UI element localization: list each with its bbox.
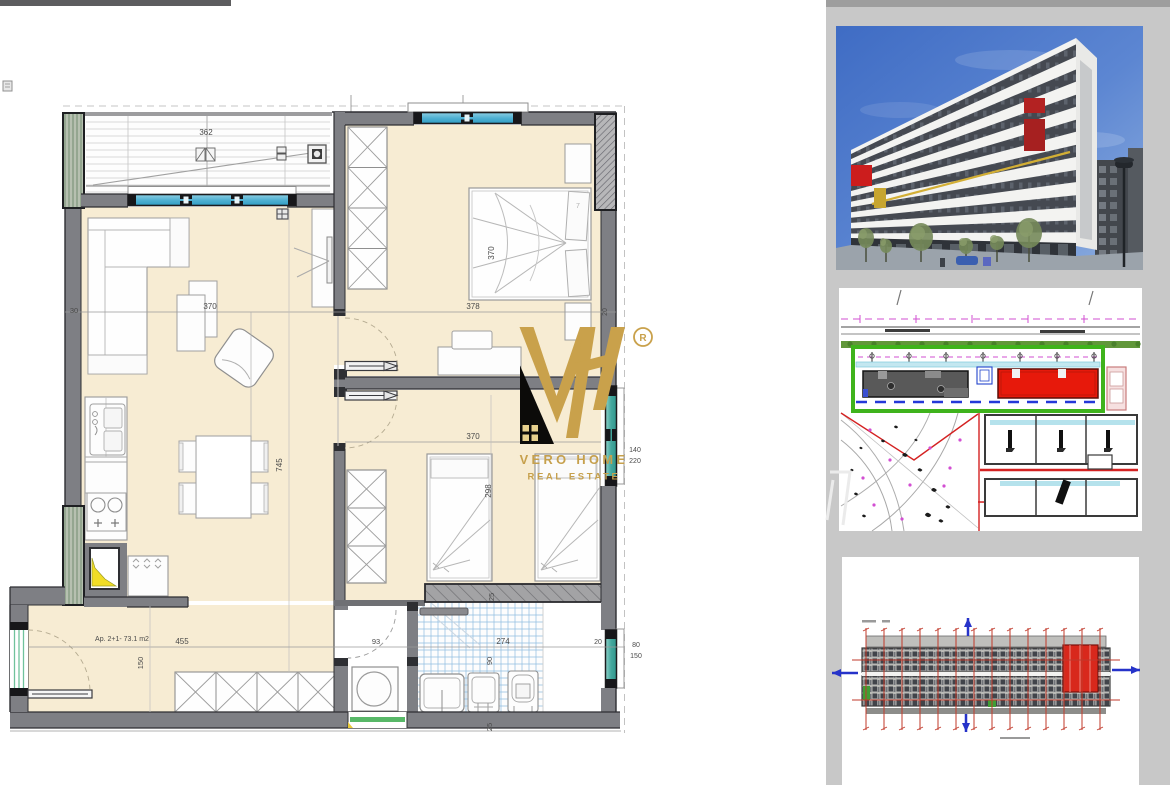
svg-text:220: 220: [629, 458, 641, 465]
svg-text:VERO HOME: VERO HOME: [520, 452, 629, 467]
svg-text:274: 274: [496, 637, 510, 646]
svg-text:455: 455: [175, 637, 189, 646]
svg-text:Ap. 2+1- 73.1 m2: Ap. 2+1- 73.1 m2: [95, 636, 149, 643]
svg-text:REAL ESTATE: REAL ESTATE: [528, 472, 621, 483]
svg-text:7: 7: [576, 203, 580, 210]
svg-text:80: 80: [632, 642, 640, 649]
svg-text:745: 745: [275, 458, 284, 472]
svg-text:378: 378: [466, 302, 480, 311]
svg-text:90: 90: [485, 657, 494, 665]
svg-text:20: 20: [602, 308, 609, 316]
svg-text:30: 30: [70, 306, 78, 315]
svg-text:370: 370: [487, 246, 496, 260]
svg-text:93: 93: [372, 637, 380, 646]
svg-text:370: 370: [203, 302, 217, 311]
svg-text:370: 370: [466, 432, 480, 441]
svg-text:150: 150: [136, 657, 145, 670]
svg-text:298: 298: [484, 484, 493, 498]
svg-text:150: 150: [630, 653, 642, 660]
svg-text:20: 20: [594, 639, 602, 646]
svg-text:140: 140: [629, 447, 641, 454]
svg-text:25: 25: [487, 593, 496, 601]
svg-text:25: 25: [485, 723, 494, 731]
svg-text:362: 362: [199, 128, 213, 137]
svg-text:R: R: [639, 333, 647, 344]
